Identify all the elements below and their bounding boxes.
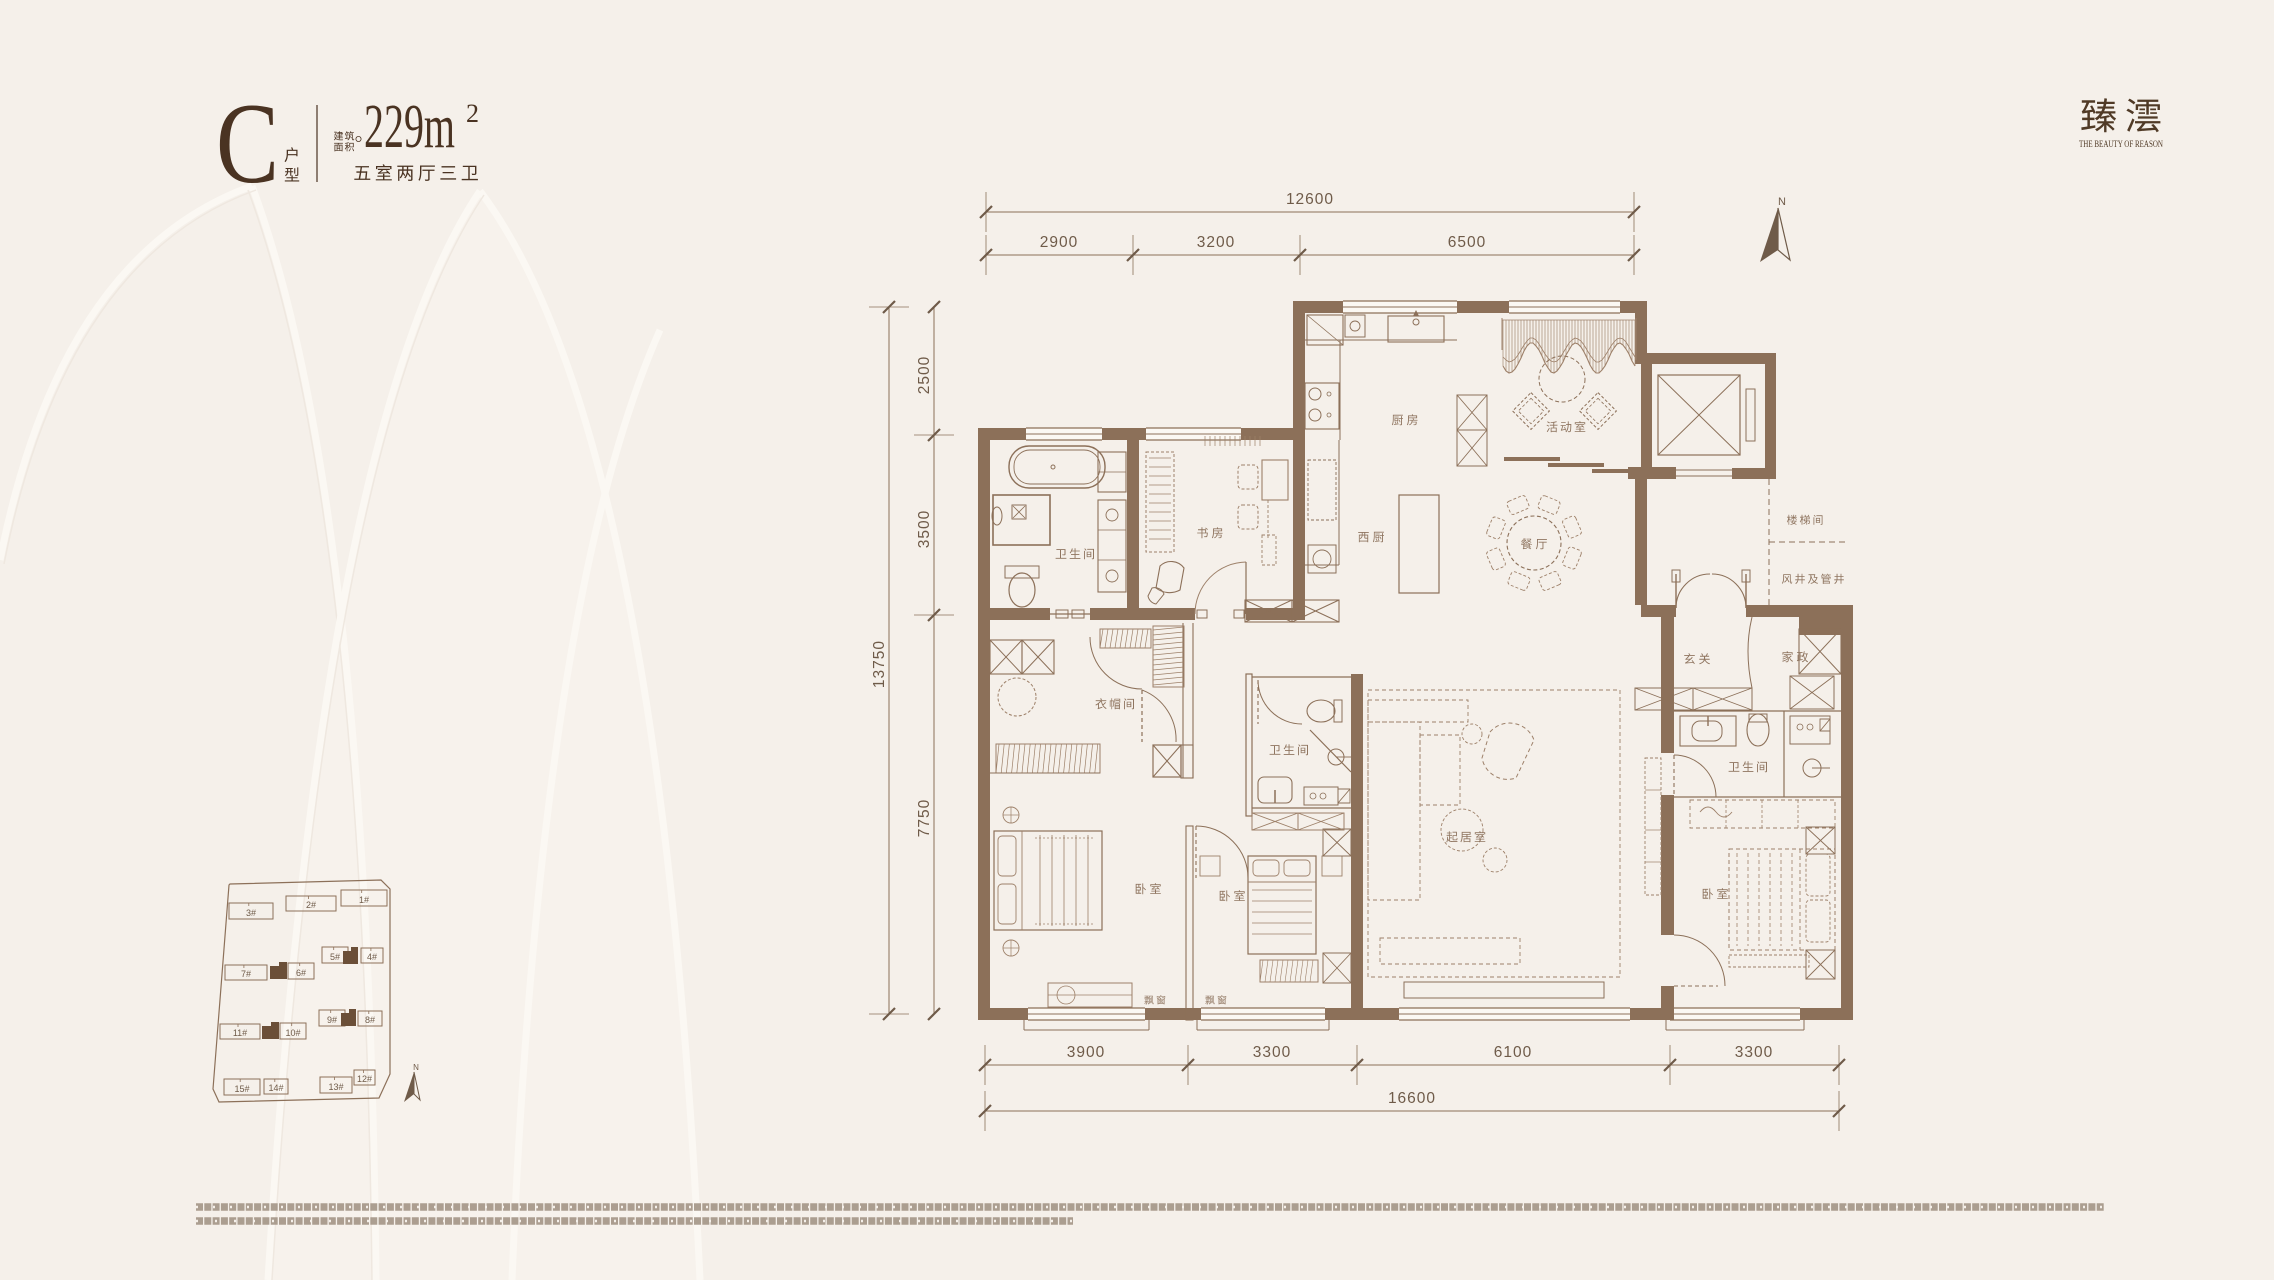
svg-text:4#: 4# (367, 952, 377, 962)
svg-text:229m: 229m (364, 93, 455, 161)
svg-text:7750: 7750 (916, 799, 933, 837)
svg-text:N: N (413, 1063, 419, 1072)
svg-text:N: N (1778, 196, 1786, 208)
svg-text:3300: 3300 (1253, 1044, 1291, 1061)
svg-text:6#: 6# (296, 968, 306, 978)
svg-text:12600: 12600 (1286, 191, 1334, 208)
svg-text:2900: 2900 (1040, 234, 1078, 251)
svg-text:12#: 12# (357, 1074, 372, 1084)
svg-text:11#: 11# (233, 1028, 247, 1038)
svg-text:6100: 6100 (1494, 1044, 1532, 1061)
svg-text:2: 2 (466, 99, 479, 128)
svg-text:3#: 3# (246, 908, 256, 918)
svg-text:6500: 6500 (1448, 234, 1486, 251)
svg-text:15#: 15# (234, 1084, 249, 1094)
svg-text:9#: 9# (327, 1015, 337, 1025)
svg-text:C: C (216, 80, 279, 208)
svg-text:3300: 3300 (1735, 1044, 1773, 1061)
svg-text:3900: 3900 (1067, 1044, 1105, 1061)
svg-text:3200: 3200 (1197, 234, 1235, 251)
svg-text:2#: 2# (306, 900, 316, 910)
svg-text:5#: 5# (330, 952, 340, 962)
svg-text:8#: 8# (365, 1015, 375, 1025)
svg-text:16600: 16600 (1388, 1090, 1436, 1107)
svg-text:3500: 3500 (916, 510, 933, 548)
svg-text:10#: 10# (285, 1028, 300, 1038)
svg-text:14#: 14# (268, 1083, 283, 1093)
svg-text:13#: 13# (328, 1082, 343, 1092)
svg-text:1#: 1# (359, 895, 369, 905)
svg-text:7#: 7# (241, 969, 251, 979)
svg-text:2500: 2500 (916, 356, 933, 394)
svg-text:13750: 13750 (871, 640, 888, 688)
svg-text:THE BEAUTY OF REASON: THE BEAUTY OF REASON (2079, 140, 2163, 150)
